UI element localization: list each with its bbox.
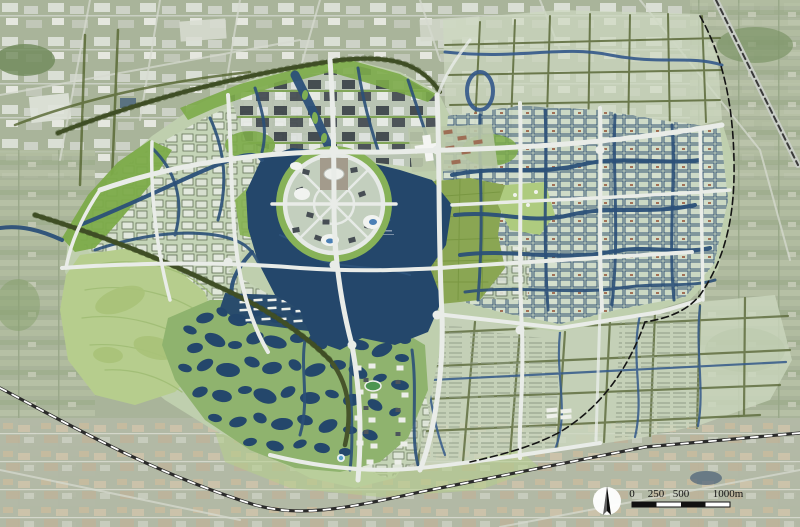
masterplan-map: 0 250 500 1000m xyxy=(0,0,800,527)
factory-patch xyxy=(179,18,226,41)
south-axis-buildings-item xyxy=(371,394,378,399)
marina-docks-item xyxy=(253,299,262,302)
south-axis-buildings-item xyxy=(355,366,362,371)
scalebar-label-500: 500 xyxy=(673,488,690,500)
south-axis-towers-item xyxy=(396,380,401,384)
scalebar-label-1000m: 1000m xyxy=(713,488,744,500)
map-feature-layers xyxy=(0,0,800,527)
south-axis-towers-item xyxy=(364,406,369,410)
south-axis-towers-item xyxy=(364,430,369,434)
south-pool-water xyxy=(339,456,343,460)
south-axis-buildings-item xyxy=(402,393,409,398)
scalebar-segment xyxy=(681,502,706,507)
southeast-building-rows xyxy=(615,308,700,438)
cbd-landmark-buildings-item xyxy=(290,162,302,170)
east-golf-bunkers-item xyxy=(526,203,530,207)
south-axis-buildings-item xyxy=(371,444,378,449)
south-axis-towers-item xyxy=(396,432,401,436)
cbd-towers-item xyxy=(323,220,330,225)
cbd-landmark-buildings-item xyxy=(294,188,310,200)
marina-docks-item xyxy=(267,299,276,302)
south-axis-buildings-item xyxy=(399,418,406,423)
south-axis-buildings-item xyxy=(357,390,364,395)
scalebar-label-250: 250 xyxy=(648,488,665,500)
south-axis-buildings-item xyxy=(357,441,364,446)
road-roundabouts-item xyxy=(596,146,605,155)
map-canvas: 0 250 500 1000m xyxy=(0,0,800,527)
road-roundabouts-item xyxy=(348,341,357,350)
east-golf-bunkers-item xyxy=(513,193,517,197)
road-roundabouts-item xyxy=(433,146,442,155)
south-axis-towers-item xyxy=(364,378,369,382)
road-roundabouts-item xyxy=(433,311,442,320)
south-axis-buildings-item xyxy=(369,364,376,369)
south-axis-towers-item xyxy=(396,408,401,412)
south-axis-buildings-item xyxy=(397,366,404,371)
wetland-ponds-item xyxy=(228,341,242,349)
road-roundabouts-item xyxy=(516,326,525,335)
scalebar-segment xyxy=(632,502,657,507)
marina-docks-item xyxy=(261,318,270,321)
satellite-pond xyxy=(690,471,722,485)
south-stadium-field xyxy=(365,381,381,391)
south-axis-buildings-item xyxy=(369,418,376,423)
marina-docks-item xyxy=(293,320,302,323)
forest-patch xyxy=(717,27,793,63)
road-roundabouts-item xyxy=(224,258,233,267)
marina-docks-item xyxy=(281,308,290,311)
scalebar-label-0: 0 xyxy=(629,488,635,500)
cbd-landmark-pools-item xyxy=(369,219,377,225)
marina-docks-item xyxy=(267,307,276,310)
southeast-building-rows xyxy=(470,330,560,455)
road-roundabouts-item xyxy=(330,261,339,270)
south-axis-buildings-item xyxy=(401,442,408,447)
south-axis-buildings-item xyxy=(355,416,362,421)
east-golf-bunkers-item xyxy=(534,190,538,194)
south-axis-buildings-item xyxy=(367,460,374,465)
wetland-ponds-item xyxy=(300,392,320,404)
south-axis-buildings-item xyxy=(395,460,402,465)
road-roundabouts-item xyxy=(330,146,339,155)
